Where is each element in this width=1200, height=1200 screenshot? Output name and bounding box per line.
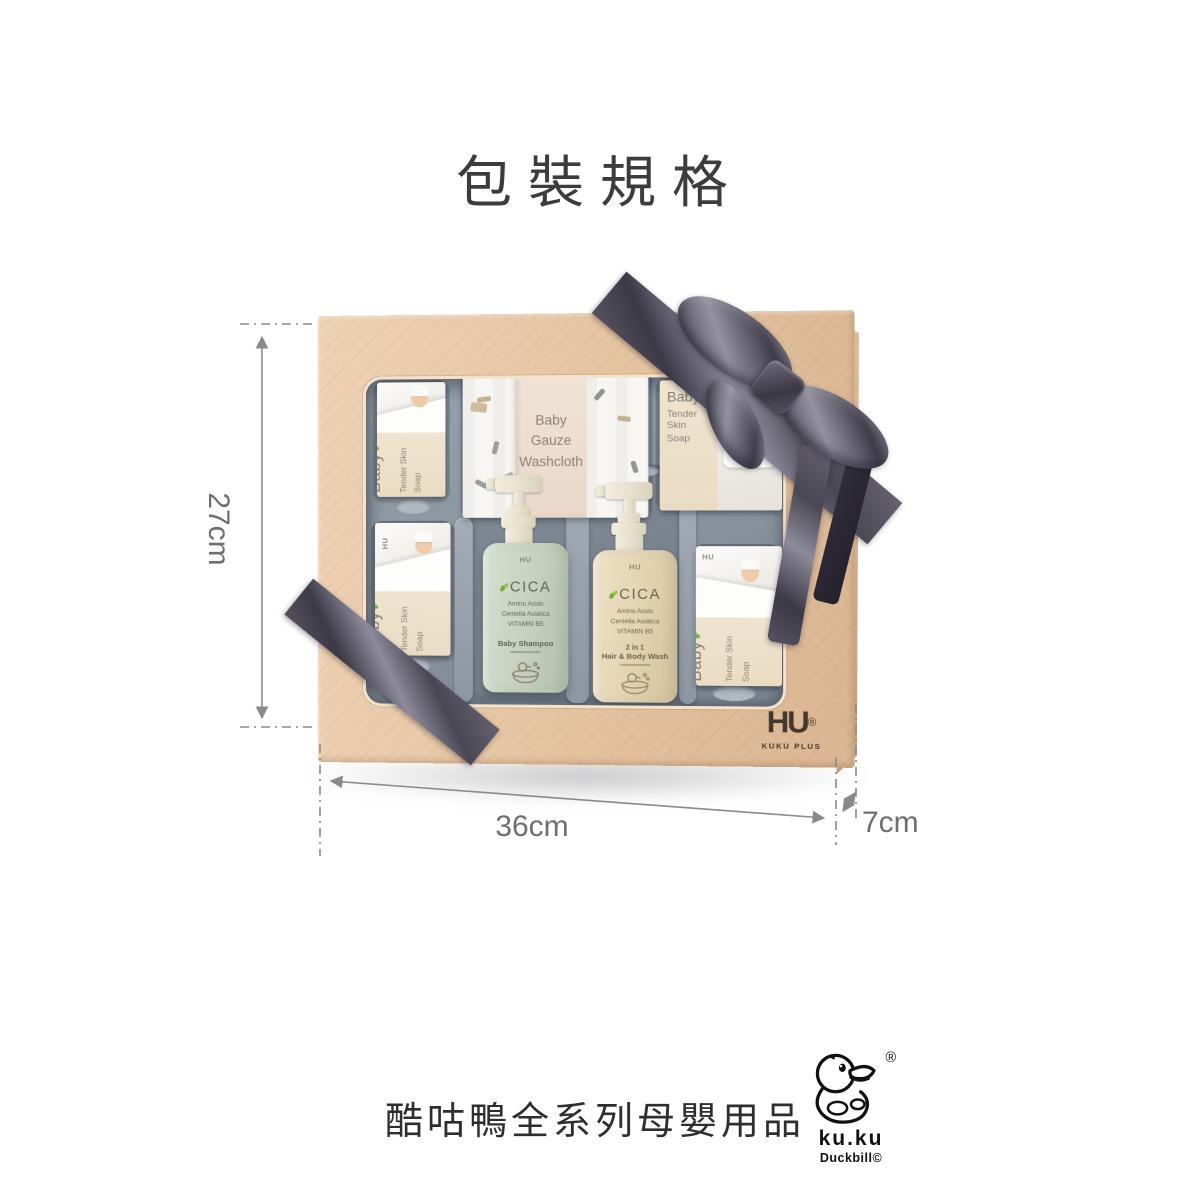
packaging-spec-image: 包裝規格 (0, 0, 1200, 1200)
brand-logo-block: ® ku.ku Duckbill© (796, 1048, 906, 1165)
registered-mark: ® (886, 1050, 897, 1066)
footer-text: 酷咕鴨全系列母嬰用品 (0, 1090, 1190, 1145)
duckbill-wordmark: Duckbill© (796, 1151, 906, 1165)
kuku-wordmark: ku.ku (796, 1127, 906, 1151)
width-dimension-label: 36cm (462, 810, 602, 844)
depth-dimension-label: 7cm (862, 806, 952, 840)
dimension-lines (0, 0, 1200, 1200)
height-dimension-label: 27cm (201, 489, 235, 569)
duck-logo-icon: ® (803, 1048, 899, 1126)
